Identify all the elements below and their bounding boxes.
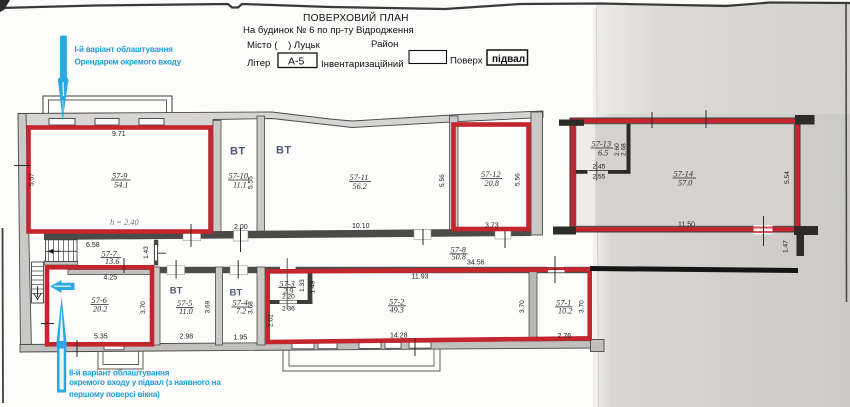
svg-text:Інвентаризаційний: Інвентаризаційний (321, 59, 404, 70)
svg-text:2.68: 2.68 (620, 143, 627, 156)
svg-text:50.8: 50.8 (452, 253, 466, 262)
svg-text:34.56: 34.56 (467, 259, 485, 266)
svg-text:6.5: 6.5 (598, 149, 608, 158)
svg-text:першому поверсі вікна): першому поверсі вікна) (69, 390, 160, 399)
svg-text:7.2: 7.2 (236, 306, 246, 315)
svg-text:57.0: 57.0 (678, 179, 692, 188)
svg-text:4.25: 4.25 (104, 274, 118, 281)
svg-text:5.57: 5.57 (29, 173, 36, 186)
svg-text:1.95: 1.95 (234, 335, 248, 342)
svg-text:2.55: 2.55 (593, 174, 606, 181)
svg-text:14.28: 14.28 (390, 332, 408, 339)
svg-text:А-5: А-5 (288, 56, 305, 68)
svg-text:11.50: 11.50 (678, 222, 695, 229)
svg-text:окремого входу у підвал (з ная: окремого входу у підвал (з наявного на (69, 378, 221, 387)
svg-text:5.56: 5.56 (515, 173, 522, 186)
svg-text:54.1: 54.1 (114, 181, 128, 190)
svg-text:На будинок № 6 по пр-ту Відро: На будинок № 6 по пр-ту Відродження (243, 25, 414, 36)
svg-text:57-14: 57-14 (674, 170, 694, 179)
svg-text:3.68: 3.68 (248, 301, 255, 314)
svg-text:49.3: 49.3 (390, 306, 404, 315)
svg-text:2 36: 2 36 (282, 305, 295, 312)
svg-text:5.54: 5.54 (784, 171, 791, 184)
svg-text:2.98: 2.98 (180, 334, 194, 341)
svg-text:h = 2.40: h = 2.40 (110, 218, 139, 227)
svg-text:57-13: 57-13 (592, 140, 612, 149)
svg-text:10.10: 10.10 (352, 223, 370, 230)
svg-text:57-12: 57-12 (481, 170, 501, 179)
svg-text:1.47: 1.47 (783, 240, 790, 253)
svg-text:5.35: 5.35 (94, 334, 108, 341)
svg-text:9.71: 9.71 (112, 131, 126, 138)
svg-text:3.69: 3.69 (204, 300, 211, 313)
svg-text:Місто ( ) Луцьк: Місто ( ) Луцьк (247, 40, 321, 51)
svg-text:3.73: 3.73 (485, 223, 499, 230)
svg-text:20.8: 20.8 (485, 179, 499, 188)
svg-text:3.70: 3.70 (140, 301, 147, 314)
svg-text:2.76: 2.76 (558, 333, 572, 340)
svg-text:11.0: 11.0 (179, 307, 193, 316)
svg-text:6.58: 6.58 (86, 242, 100, 249)
svg-text:3.70: 3.70 (579, 300, 586, 313)
svg-text:1.49: 1.49 (310, 280, 317, 293)
svg-text:ПОВЕРХОВИЙ ПЛАН: ПОВЕРХОВИЙ ПЛАН (303, 11, 409, 24)
svg-text:ІІ-й варіант облаштування: ІІ-й варіант облаштування (69, 369, 170, 378)
svg-text:20.2: 20.2 (93, 304, 107, 313)
svg-text:І-й варіант облаштування: І-й варіант облаштування (75, 45, 174, 54)
svg-text:Поверх: Поверх (450, 56, 483, 67)
svg-text:2.00: 2.00 (234, 224, 248, 231)
svg-text:57-9: 57-9 (112, 172, 128, 181)
svg-text:1.43: 1.43 (143, 246, 150, 259)
svg-text:57-11: 57-11 (350, 173, 369, 182)
svg-text:Орендарем окремого входу: Орендарем окремого входу (75, 57, 182, 66)
svg-text:2.02: 2.02 (268, 314, 275, 327)
svg-text:ВТ: ВТ (170, 286, 183, 297)
svg-text:10.2: 10.2 (558, 306, 572, 315)
svg-text:ВТ: ВТ (230, 288, 243, 299)
svg-text:ВТ: ВТ (276, 145, 292, 157)
svg-text:11.93: 11.93 (412, 273, 429, 280)
svg-text:Район: Район (371, 39, 398, 50)
svg-text:5.56: 5.56 (439, 174, 446, 187)
svg-text:5.55: 5.55 (248, 176, 255, 189)
svg-text:13.6: 13.6 (105, 257, 120, 266)
svg-text:57-10: 57-10 (229, 172, 249, 181)
svg-text:2.45: 2.45 (593, 164, 606, 171)
svg-text:Літер: Літер (247, 58, 270, 69)
svg-text:1.33: 1.33 (299, 279, 306, 292)
svg-text:3.70: 3.70 (519, 300, 526, 313)
svg-text:56.2: 56.2 (353, 182, 367, 191)
svg-text:ВТ: ВТ (230, 146, 246, 158)
svg-text:2 20: 2 20 (282, 293, 295, 300)
svg-text:11.1: 11.1 (233, 181, 247, 190)
svg-text:підвал: підвал (492, 54, 525, 65)
